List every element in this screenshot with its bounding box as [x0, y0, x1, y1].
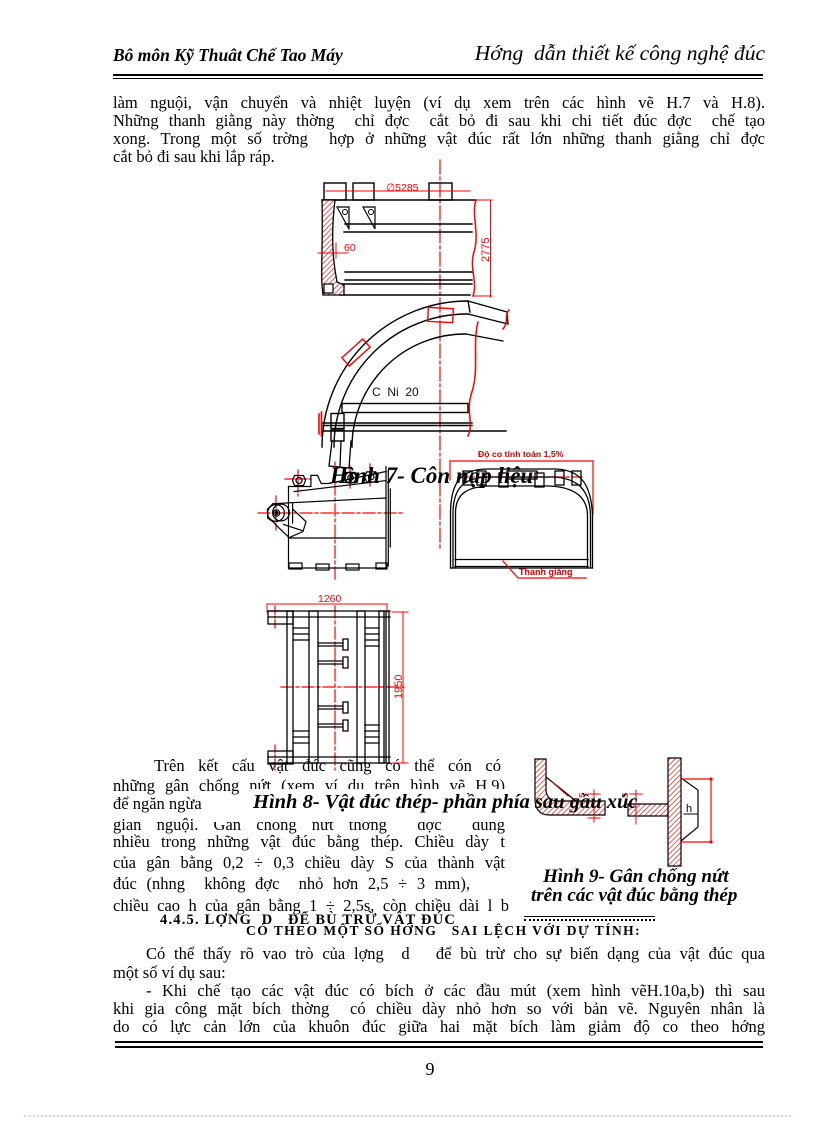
svg-text:C Ni 20: C Ni 20	[372, 385, 419, 399]
svg-text:1260: 1260	[318, 593, 342, 605]
svg-text:∅5285: ∅5285	[386, 182, 419, 194]
svg-text:Thanh giằng: Thanh giằng	[519, 566, 573, 577]
svg-text:2775: 2775	[480, 238, 492, 262]
svg-text:h: h	[686, 803, 692, 815]
svg-text:60: 60	[344, 242, 356, 254]
svg-text:1950: 1950	[393, 675, 405, 699]
svg-text:Độ co tính toán 1,5%: Độ co tính toán 1,5%	[478, 449, 564, 459]
